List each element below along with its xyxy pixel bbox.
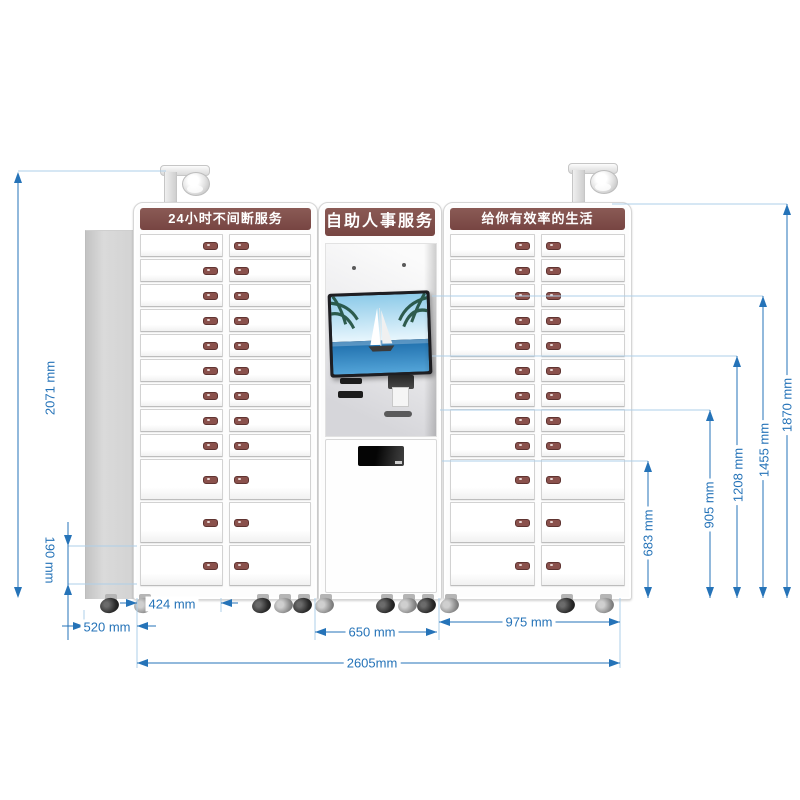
locker-door (541, 459, 626, 500)
locker-handle-icon (546, 562, 561, 570)
dimension-label-905: 905 mm (702, 479, 717, 532)
locker-door (140, 409, 223, 432)
caster-wheel-icon (376, 594, 397, 615)
locker-door (229, 434, 312, 457)
caster-wheel-icon (398, 594, 419, 615)
locker-handle-icon (234, 367, 249, 375)
caster-wheel-icon (252, 594, 273, 615)
locker-handle-icon (546, 242, 561, 250)
dimension-label-424: 424 mm (146, 597, 199, 612)
locker-door (229, 502, 312, 543)
locker-handle-icon (203, 242, 218, 250)
locker-door (229, 284, 312, 307)
locker-column (229, 234, 312, 588)
locker-door (140, 234, 223, 257)
locker-handle-icon (203, 317, 218, 325)
locker-door (541, 334, 626, 357)
locker-door (541, 502, 626, 543)
document-drop-slot (358, 446, 404, 466)
center-banner: 自助人事服务 (325, 208, 435, 236)
dimension-label-190: 190 mm (43, 537, 58, 584)
cctv-dome-camera-icon (160, 163, 212, 205)
locker-handle-icon (234, 342, 249, 350)
right-locker-cabinet: 给你有效率的生活 (443, 202, 632, 600)
locker-handle-icon (203, 267, 218, 275)
locker-handle-icon (546, 476, 561, 484)
locker-handle-icon (546, 519, 561, 527)
locker-door (140, 284, 223, 307)
locker-door (450, 409, 535, 432)
locker-door (229, 234, 312, 257)
caster-wheel-icon (595, 594, 616, 615)
left-banner: 24小时不间断服务 (140, 208, 311, 230)
locker-door (541, 384, 626, 407)
locker-door (450, 334, 535, 357)
locker-door (229, 384, 312, 407)
dimension-label-2605: 2605mm (344, 656, 401, 671)
locker-handle-icon (234, 562, 249, 570)
locker-handle-icon (234, 292, 249, 300)
locker-handle-icon (515, 392, 530, 400)
locker-door (140, 384, 223, 407)
locker-handle-icon (203, 476, 218, 484)
locker-door (541, 409, 626, 432)
dimension-label-1208: 1208 mm (731, 445, 746, 505)
locker-door (450, 284, 535, 307)
locker-handle-icon (546, 417, 561, 425)
kiosk-lower-door (325, 439, 437, 593)
touch-screen (328, 290, 433, 378)
locker-door (541, 545, 626, 586)
locker-handle-icon (515, 562, 530, 570)
locker-handle-icon (515, 267, 530, 275)
locker-handle-icon (515, 417, 530, 425)
locker-handle-icon (515, 442, 530, 450)
locker-door (140, 309, 223, 332)
camera-dome (182, 172, 210, 196)
dimension-label-683: 683 mm (641, 507, 656, 560)
caster-wheel-icon (417, 594, 438, 615)
cctv-dome-camera-icon (568, 161, 620, 203)
caster-wheel-icon (440, 594, 461, 615)
locker-door (229, 309, 312, 332)
locker-handle-icon (546, 442, 561, 450)
right-cabinet-doors (450, 234, 625, 588)
downlight-icon (352, 266, 356, 270)
locker-machine-dimension-diagram: 24小时不间断服务 自助人事服务 (0, 0, 800, 800)
caster-wheel-icon (293, 594, 314, 615)
dimension-label-520: 520 mm (81, 620, 134, 635)
locker-door (140, 359, 223, 382)
locker-door (229, 334, 312, 357)
locker-column (140, 234, 223, 588)
locker-handle-icon (234, 242, 249, 250)
locker-door (229, 409, 312, 432)
locker-door (229, 359, 312, 382)
locker-door (450, 459, 535, 500)
locker-column (541, 234, 626, 588)
locker-handle-icon (546, 367, 561, 375)
kiosk-alcove (325, 243, 437, 437)
dimension-label-1870: 1870 mm (780, 375, 795, 435)
locker-handle-icon (515, 367, 530, 375)
dimension-label-1455: 1455 mm (757, 420, 772, 480)
locker-handle-icon (203, 519, 218, 527)
locker-handle-icon (515, 317, 530, 325)
locker-handle-icon (546, 292, 561, 300)
locker-handle-icon (546, 392, 561, 400)
locker-handle-icon (546, 342, 561, 350)
receipt-slot (338, 391, 363, 398)
locker-door (140, 334, 223, 357)
locker-door (450, 545, 535, 586)
locker-door (450, 502, 535, 543)
locker-handle-icon (234, 317, 249, 325)
locker-handle-icon (203, 292, 218, 300)
locker-door (450, 434, 535, 457)
locker-door (229, 459, 312, 500)
tray-slot (384, 411, 412, 417)
caster-wheel-icon (100, 594, 121, 615)
locker-door (140, 459, 223, 500)
locker-handle-icon (234, 392, 249, 400)
locker-handle-icon (234, 519, 249, 527)
locker-handle-icon (203, 417, 218, 425)
dimension-label-650: 650 mm (346, 625, 399, 640)
caster-wheel-icon (556, 594, 577, 615)
locker-handle-icon (515, 342, 530, 350)
downlight-icon (402, 263, 406, 267)
dimension-label-975: 975 mm (503, 615, 556, 630)
kiosk-tower: 自助人事服务 (318, 202, 442, 600)
locker-door (140, 259, 223, 282)
alcove-side-wall (424, 244, 436, 436)
locker-handle-icon (234, 442, 249, 450)
locker-door (450, 359, 535, 382)
locker-handle-icon (203, 562, 218, 570)
locker-door (450, 309, 535, 332)
locker-door (450, 259, 535, 282)
locker-handle-icon (515, 476, 530, 484)
locker-handle-icon (203, 392, 218, 400)
locker-door (541, 259, 626, 282)
locker-handle-icon (203, 342, 218, 350)
locker-door (229, 545, 312, 586)
locker-handle-icon (234, 267, 249, 275)
locker-handle-icon (203, 367, 218, 375)
locker-handle-icon (515, 519, 530, 527)
locker-column (450, 234, 535, 588)
beach-sailboat-image (331, 293, 430, 374)
locker-door (541, 434, 626, 457)
camera-dome (590, 170, 618, 194)
locker-handle-icon (203, 442, 218, 450)
caster-wheel-icon (315, 594, 336, 615)
right-banner: 给你有效率的生活 (450, 208, 625, 230)
locker-door (541, 309, 626, 332)
left-locker-cabinet: 24小时不间断服务 (133, 202, 318, 600)
locker-door (140, 545, 223, 586)
locker-handle-icon (546, 317, 561, 325)
camera-bracket-post (572, 170, 585, 203)
locker-handle-icon (234, 476, 249, 484)
locker-door (229, 259, 312, 282)
locker-door (541, 284, 626, 307)
side-panel-cabinet (85, 230, 136, 599)
locker-handle-icon (515, 242, 530, 250)
locker-door (450, 234, 535, 257)
printer-paper (392, 387, 409, 407)
camera-bracket-post (164, 172, 177, 205)
locker-door (541, 234, 626, 257)
locker-door (140, 502, 223, 543)
locker-door (541, 359, 626, 382)
card-reader-slot (340, 378, 362, 384)
left-cabinet-doors (140, 234, 311, 588)
locker-handle-icon (515, 292, 530, 300)
locker-handle-icon (546, 267, 561, 275)
caster-wheel-icon (274, 594, 295, 615)
dimension-label-2071: 2071 mm (43, 361, 58, 415)
locker-door (140, 434, 223, 457)
locker-door (450, 384, 535, 407)
locker-handle-icon (234, 417, 249, 425)
